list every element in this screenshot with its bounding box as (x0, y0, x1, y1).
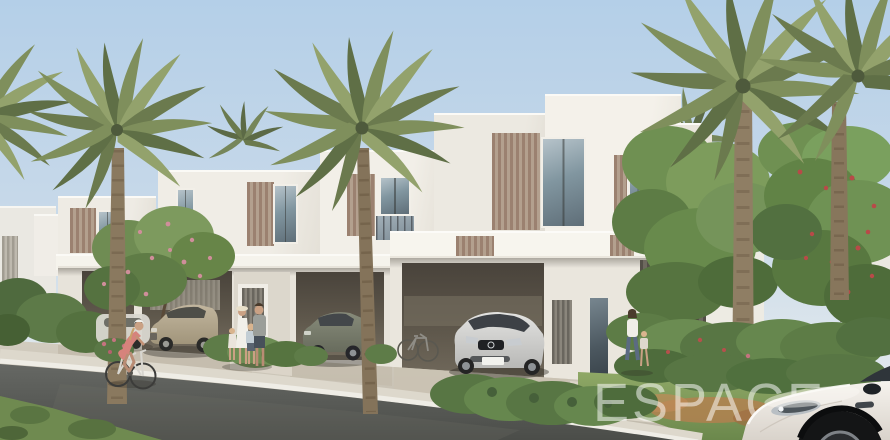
unit2-louver-screen (247, 182, 274, 246)
unit4-right-window (682, 151, 698, 207)
entry-louver-wall (640, 260, 708, 390)
right-white-structure (856, 234, 890, 278)
watermark: ESPACE (593, 376, 826, 430)
unit3-louver-screen (347, 174, 375, 236)
canopy-fascia-louver (456, 236, 494, 257)
carport-3 (296, 272, 384, 360)
unit1-window (97, 210, 118, 252)
unit4-louver-screen (492, 133, 540, 230)
carport-1 (82, 271, 134, 352)
entrance-door-louvered (242, 288, 264, 346)
unit4-louver-column (614, 155, 627, 221)
unit2-window-right (273, 184, 298, 244)
villa-street-rendering: ESPACE (0, 0, 890, 440)
carport-canopy-near (390, 231, 708, 259)
unit1-louver-screen (70, 208, 96, 253)
carport-2-back-louver (150, 280, 220, 310)
unit4-window-large (541, 137, 586, 228)
carport-4-back-wall (404, 296, 542, 326)
entry-glass-door (588, 296, 610, 380)
pillar-louver-window (552, 300, 572, 364)
unit4-window-small (628, 157, 648, 220)
distant-house-window-louver (2, 236, 18, 286)
unit2-window-left (176, 188, 195, 240)
carport-4 (402, 263, 544, 390)
right-garden-structure (706, 252, 764, 338)
unit3-window (379, 176, 411, 216)
right-boundary-wall (843, 276, 885, 350)
